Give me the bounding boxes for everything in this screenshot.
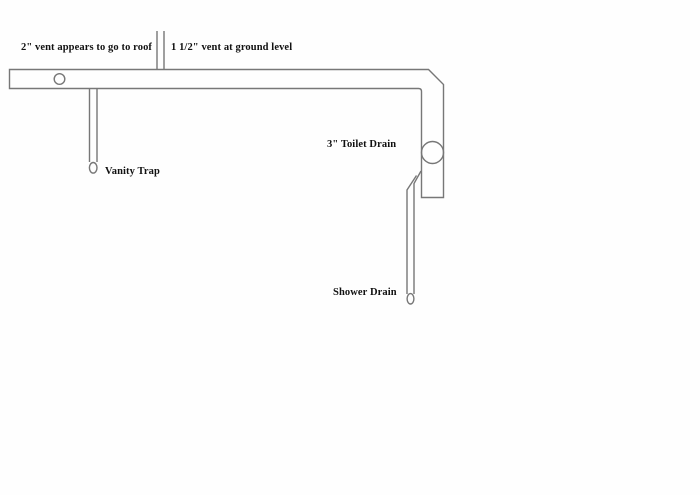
main-drain-pipe	[10, 70, 444, 198]
label-vent-to-roof: 2" vent appears to go to roof	[21, 42, 152, 53]
label-toilet-drain: 3" Toilet Drain	[327, 139, 396, 150]
vanity-trap-opening	[89, 163, 97, 174]
vent-pipe	[157, 31, 164, 70]
toilet-drain-circle	[422, 142, 444, 164]
pipe-lines	[10, 31, 444, 304]
pipe-drawing	[0, 0, 700, 495]
pipe-joint-circle	[54, 74, 65, 85]
plumbing-diagram: 2" vent appears to go to roof 1 1/2" ven…	[0, 0, 700, 495]
vanity-trap-pipe	[90, 89, 98, 163]
label-vanity-trap: Vanity Trap	[105, 166, 160, 177]
shower-drain-opening	[407, 294, 414, 304]
label-vent-at-ground-level: 1 1/2" vent at ground level	[171, 42, 292, 53]
shower-drain-pipe	[407, 171, 421, 294]
label-shower-drain: Shower Drain	[333, 287, 397, 298]
